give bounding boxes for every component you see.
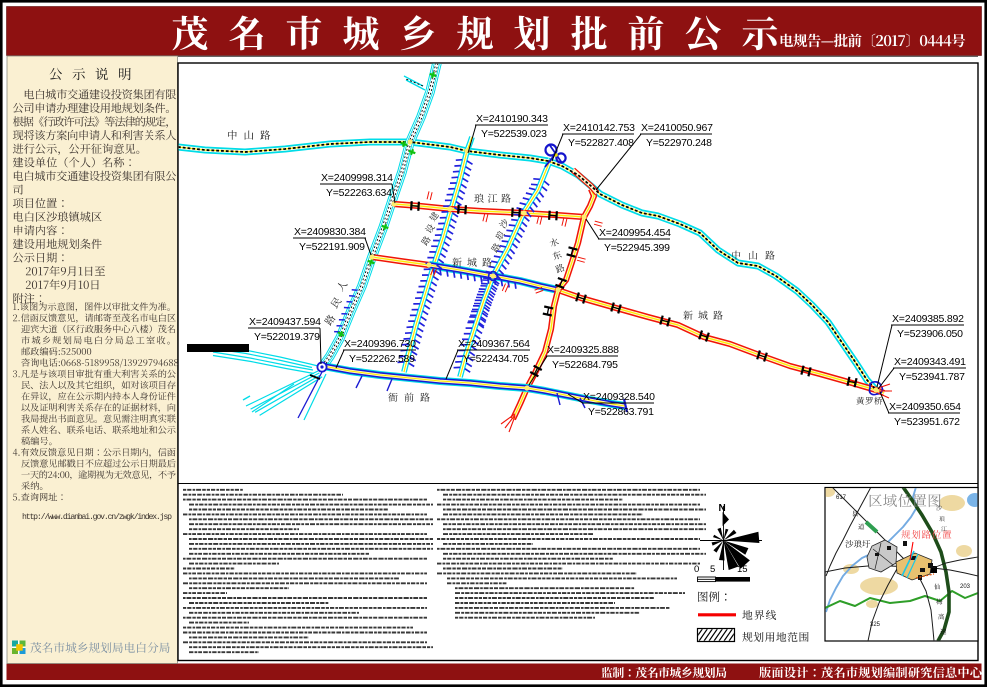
svg-text:X=2409350.654: X=2409350.654 [889, 401, 961, 413]
svg-text:Y=522539.023: Y=522539.023 [481, 128, 547, 140]
svg-text:203: 203 [960, 584, 971, 590]
svg-text:X=2409830.384: X=2409830.384 [294, 226, 366, 238]
svg-text:X=2409998.314: X=2409998.314 [321, 172, 393, 184]
svg-text:X=2409385.892: X=2409385.892 [892, 313, 964, 325]
svg-text:Y=522191.909: Y=522191.909 [299, 241, 365, 253]
svg-text:0: 0 [694, 564, 699, 575]
svg-text:Y=522434.705: Y=522434.705 [463, 353, 529, 365]
svg-text:X=2410142.753: X=2410142.753 [563, 122, 635, 134]
svg-text:Y=523941.787: Y=523941.787 [899, 371, 965, 383]
svg-text:X=2409343.491: X=2409343.491 [894, 356, 966, 368]
svg-text:Y=523951.672: Y=523951.672 [894, 416, 960, 428]
svg-text:Y=522827.408: Y=522827.408 [568, 137, 634, 149]
svg-text:Y=522019.379: Y=522019.379 [254, 331, 320, 343]
svg-text:X=2410050.967: X=2410050.967 [641, 122, 713, 134]
svg-text:X=2409325.888: X=2409325.888 [547, 344, 619, 356]
svg-text:325: 325 [870, 622, 881, 628]
svg-text:5: 5 [710, 564, 715, 575]
svg-text:Y=522945.399: Y=522945.399 [604, 242, 670, 254]
svg-text:Y=522262.589: Y=522262.589 [349, 353, 415, 365]
svg-text:X=2409437.594: X=2409437.594 [249, 316, 321, 328]
svg-text:Y=522684.795: Y=522684.795 [552, 359, 618, 371]
svg-text:617: 617 [836, 495, 847, 501]
svg-text:http://www.dianbai.gov.cn/zwgk: http://www.dianbai.gov.cn/zwgk/index.jsp [22, 512, 172, 522]
svg-text:Y=522263.634: Y=522263.634 [326, 187, 392, 199]
svg-text:Y=523906.050: Y=523906.050 [897, 328, 963, 340]
svg-text:X=2410190.343: X=2410190.343 [476, 113, 548, 125]
svg-text:N: N [719, 503, 726, 514]
svg-text:Y=522970.248: Y=522970.248 [646, 137, 712, 149]
svg-text:Y=522863.791: Y=522863.791 [588, 406, 654, 418]
svg-text:X=2409328.540: X=2409328.540 [583, 391, 655, 403]
svg-text:15: 15 [737, 564, 748, 575]
svg-text:X=2409954.454: X=2409954.454 [599, 227, 671, 239]
svg-text:X=2409367.564: X=2409367.564 [458, 338, 530, 350]
svg-text:X=2409396.730: X=2409396.730 [344, 338, 416, 350]
